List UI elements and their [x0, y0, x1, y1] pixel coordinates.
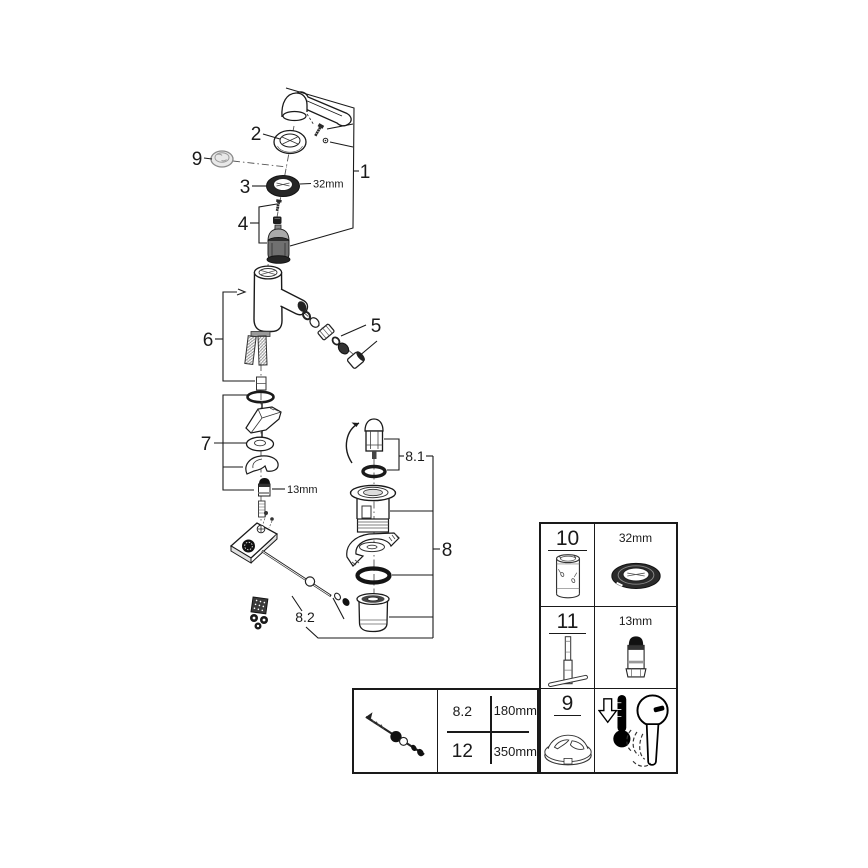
nut-13 [259, 478, 271, 496]
callout-6: 6 [203, 330, 214, 351]
ref-8-2: 8.2 [438, 703, 487, 719]
aerator-parts [302, 310, 367, 369]
drain-clevis [347, 533, 399, 566]
callout-5: 5 [371, 316, 382, 337]
handle-cap [274, 131, 306, 154]
drain-tailpiece [357, 594, 389, 632]
limiter-cap [211, 151, 233, 167]
rod-length-values: 8.2 180mm 12 350mm [438, 690, 537, 772]
thermometer-lever-icon [598, 689, 674, 772]
rod-length-table: 8.2 180mm 12 350mm [352, 688, 539, 774]
lift-rod-icon [354, 690, 438, 772]
table-row: 8.2 180mm [438, 690, 537, 731]
socket-tool-icon [545, 634, 591, 690]
cartridge-sleeve-icon [546, 551, 590, 606]
handle-screw [307, 114, 328, 143]
ring-nut-32 [267, 176, 300, 197]
callout-2: 2 [251, 124, 262, 145]
callout-9: 9 [192, 149, 203, 170]
popup-knob [346, 419, 383, 463]
base-washer [247, 437, 274, 451]
lift-rod [262, 551, 351, 607]
threaded-stud [259, 501, 266, 517]
callout-7: 7 [201, 434, 212, 455]
callout-8-2: 8.2 [295, 609, 315, 625]
callout-4: 4 [238, 214, 249, 235]
grid-cell-tool-13mm: 13mm [595, 607, 676, 690]
drain-flange [351, 485, 396, 532]
faucet-body [237, 266, 308, 331]
grid-cell-tool-32mm: 32mm [595, 524, 676, 607]
cartridge-screw [273, 199, 282, 224]
dim-13mm: 13mm [287, 484, 318, 496]
grid-cell-temp-adjust [595, 689, 676, 772]
value-180mm: 180mm [487, 703, 537, 718]
parts-tools-grid: 10 32mm [539, 522, 678, 774]
extension-nut-icon [618, 628, 654, 689]
callout-3: 3 [240, 177, 251, 198]
check-valve [250, 597, 268, 630]
grid-cell-part-11: 11 [541, 607, 595, 690]
table-row: 12 350mm [438, 731, 537, 772]
grid-cell-part-10: 10 [541, 524, 595, 607]
value-350mm: 350mm [487, 744, 537, 759]
popup-o-ring [363, 467, 385, 477]
drain-o-ring [358, 569, 390, 583]
ring-nut-icon [607, 545, 665, 606]
callout-8-1: 8.1 [405, 448, 425, 464]
limiter-cap-icon [541, 716, 595, 772]
fixing-wedge [246, 401, 281, 438]
callout-8: 8 [442, 540, 453, 561]
dim-32mm: 32mm [313, 179, 344, 191]
part-number-9: 9 [554, 691, 582, 716]
tool-size-13mm: 13mm [619, 614, 652, 628]
tool-size-32mm: 32mm [619, 531, 652, 545]
o-ring-top [248, 392, 274, 402]
ref-12: 12 [438, 741, 487, 763]
grid-cell-part-9: 9 [541, 689, 595, 772]
part-number-10: 10 [548, 526, 587, 551]
exploded-parts-diagram: 1 2 3 4 5 6 7 8 9 8.1 8.2 32mm 13mm 10 [0, 0, 868, 868]
horseshoe-clip [246, 456, 278, 474]
callout-1: 1 [360, 162, 371, 183]
cartridge [267, 225, 290, 263]
part-number-11: 11 [549, 609, 587, 634]
